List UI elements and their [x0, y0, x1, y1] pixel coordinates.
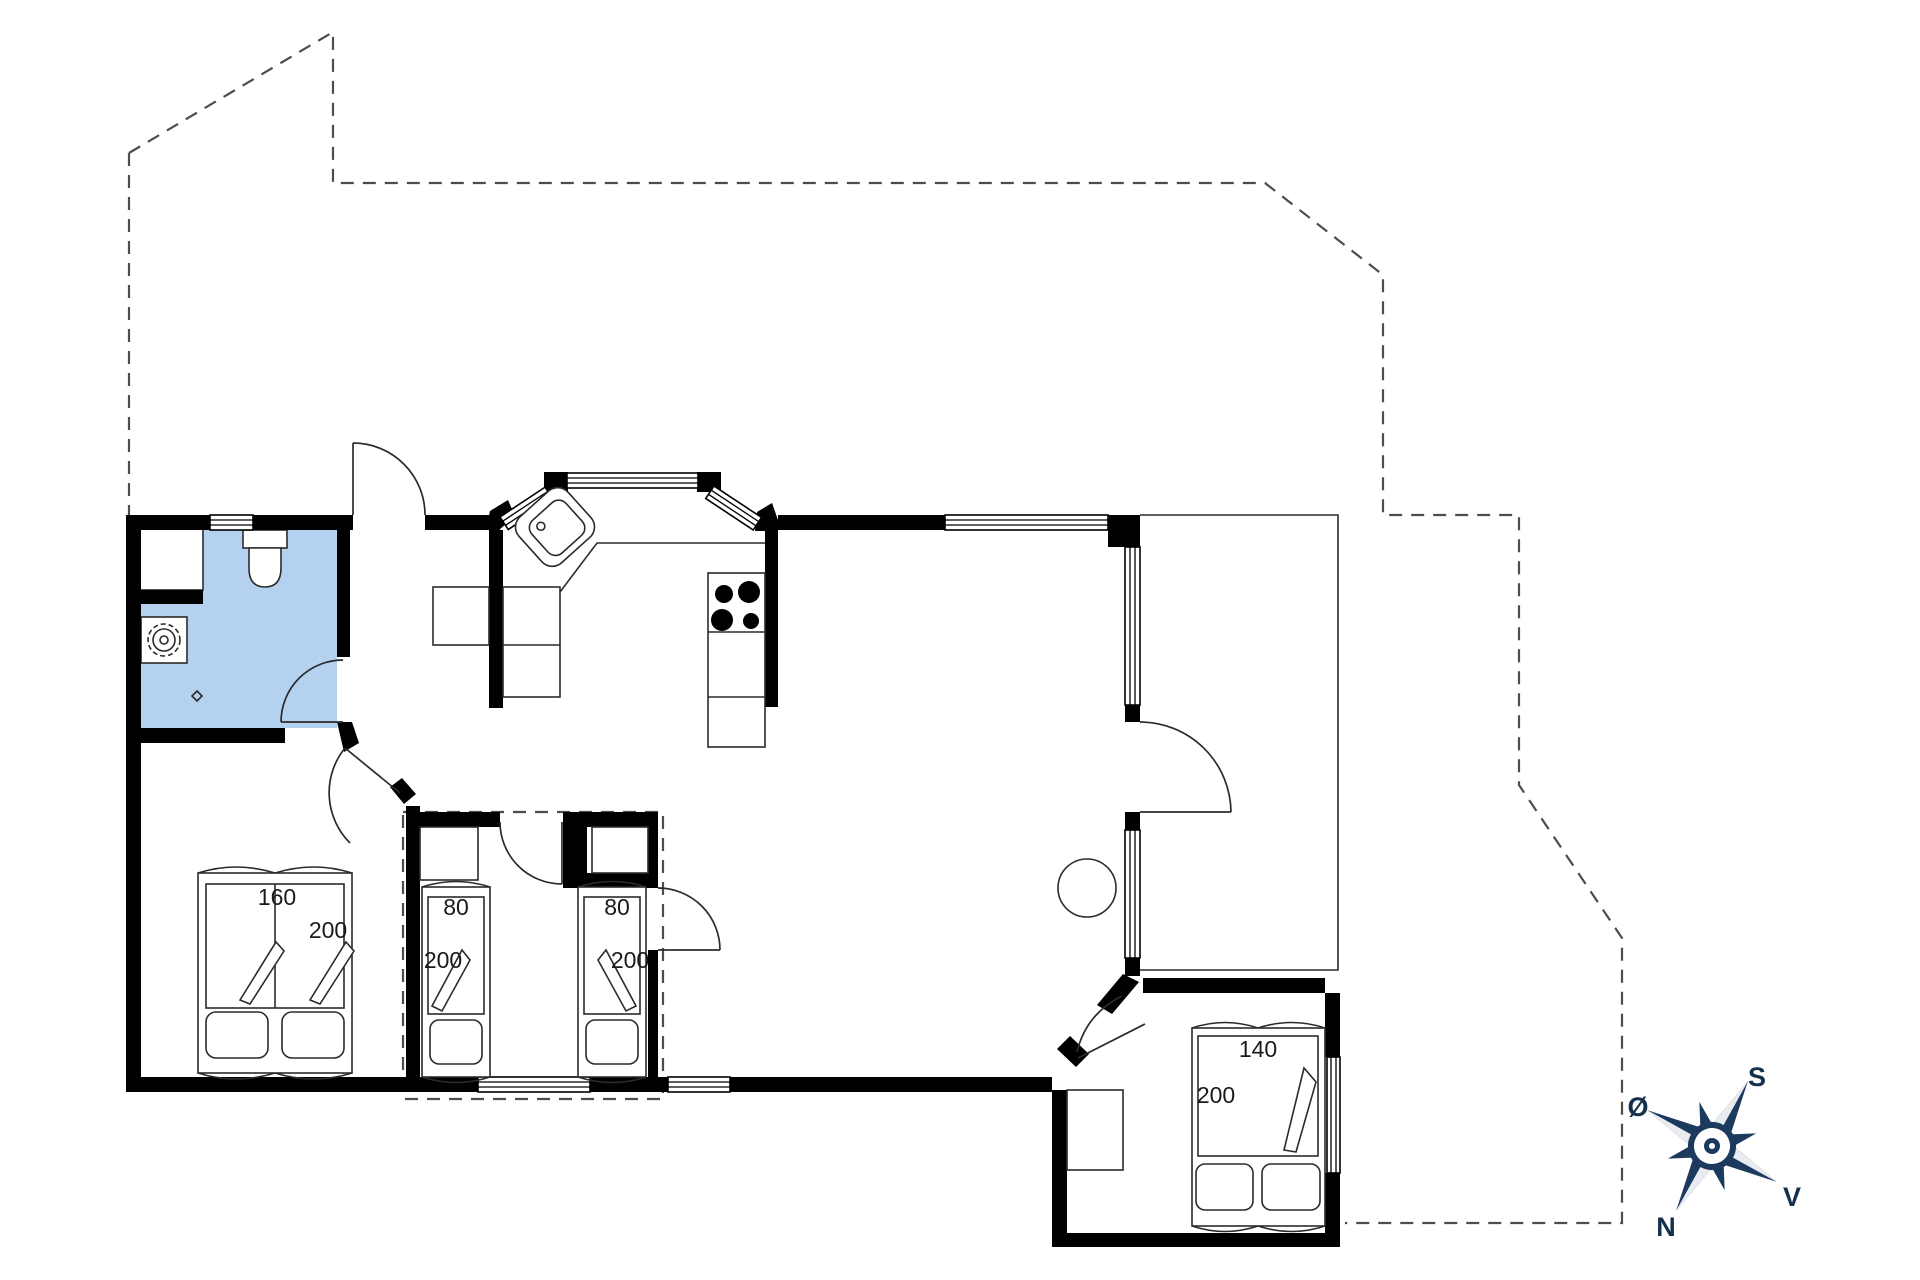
- bed4-length-label: 200: [1197, 1082, 1235, 1108]
- bed-single-80-left: 80 200: [422, 882, 490, 1083]
- roof-outline-dashed: [129, 32, 1622, 1223]
- bed-double-140: 140 200: [1192, 1023, 1325, 1232]
- entrance-door: [353, 443, 425, 515]
- bed-single-80-right: 80 200: [578, 882, 649, 1083]
- bed3-width-label: 80: [604, 894, 630, 920]
- floorplan-drawing: 160 200 80 200 80 200 140 200: [0, 0, 1920, 1280]
- window-bedroom4-east: [1327, 1057, 1340, 1173]
- compass-north-label: N: [1656, 1212, 1676, 1242]
- bedroom3-closet: [592, 827, 648, 873]
- window-south-2: [668, 1077, 730, 1092]
- pillow: [282, 1012, 344, 1058]
- terrace-door: [1140, 722, 1231, 812]
- round-table: [1058, 859, 1116, 917]
- terrace-outline: [1140, 515, 1338, 970]
- pillow: [1262, 1164, 1320, 1210]
- window-bay-right: [706, 486, 762, 530]
- window-south-1: [478, 1077, 590, 1092]
- pillow: [1196, 1164, 1253, 1210]
- floorplan-page: 160 200 80 200 80 200 140 200: [0, 0, 1920, 1280]
- pillow: [206, 1012, 268, 1058]
- bed4-width-label: 140: [1239, 1036, 1277, 1062]
- compass-rose-icon: S Ø V N: [1611, 1045, 1812, 1246]
- bed1-width-label: 160: [258, 884, 296, 910]
- kitchen-sink-icon: [510, 482, 601, 572]
- window-bathroom: [210, 515, 253, 530]
- compass-west-label: V: [1783, 1182, 1801, 1212]
- bathroom: [139, 528, 337, 728]
- window-bay-top: [567, 473, 698, 488]
- bathroom-cabinet: [139, 528, 203, 590]
- window-living-east-1: [1125, 547, 1140, 705]
- bed2-width-label: 80: [443, 894, 469, 920]
- window-living-east-2: [1125, 830, 1140, 958]
- bedroom4-closet: [1067, 1090, 1123, 1170]
- bedroom2-closet: [420, 827, 478, 880]
- pillow: [430, 1020, 482, 1064]
- bedroom2-door: [500, 822, 562, 884]
- kitchen-counter-stove: [708, 573, 765, 747]
- bedroom3-door: [658, 888, 720, 950]
- compass-east-label: Ø: [1627, 1092, 1648, 1122]
- bedroom1-door: [329, 748, 400, 843]
- kitchen-counter-left: [503, 587, 560, 697]
- pillow: [586, 1020, 638, 1064]
- washing-machine-icon: [141, 617, 187, 663]
- bed3-length-label: 200: [611, 947, 649, 973]
- window-living-north: [945, 515, 1108, 530]
- hall-closet: [433, 587, 489, 645]
- compass-south-label: S: [1748, 1062, 1766, 1092]
- bed-double-160: 160 200: [198, 867, 354, 1079]
- bed1-length-label: 200: [309, 917, 347, 943]
- bed2-length-label: 200: [424, 947, 462, 973]
